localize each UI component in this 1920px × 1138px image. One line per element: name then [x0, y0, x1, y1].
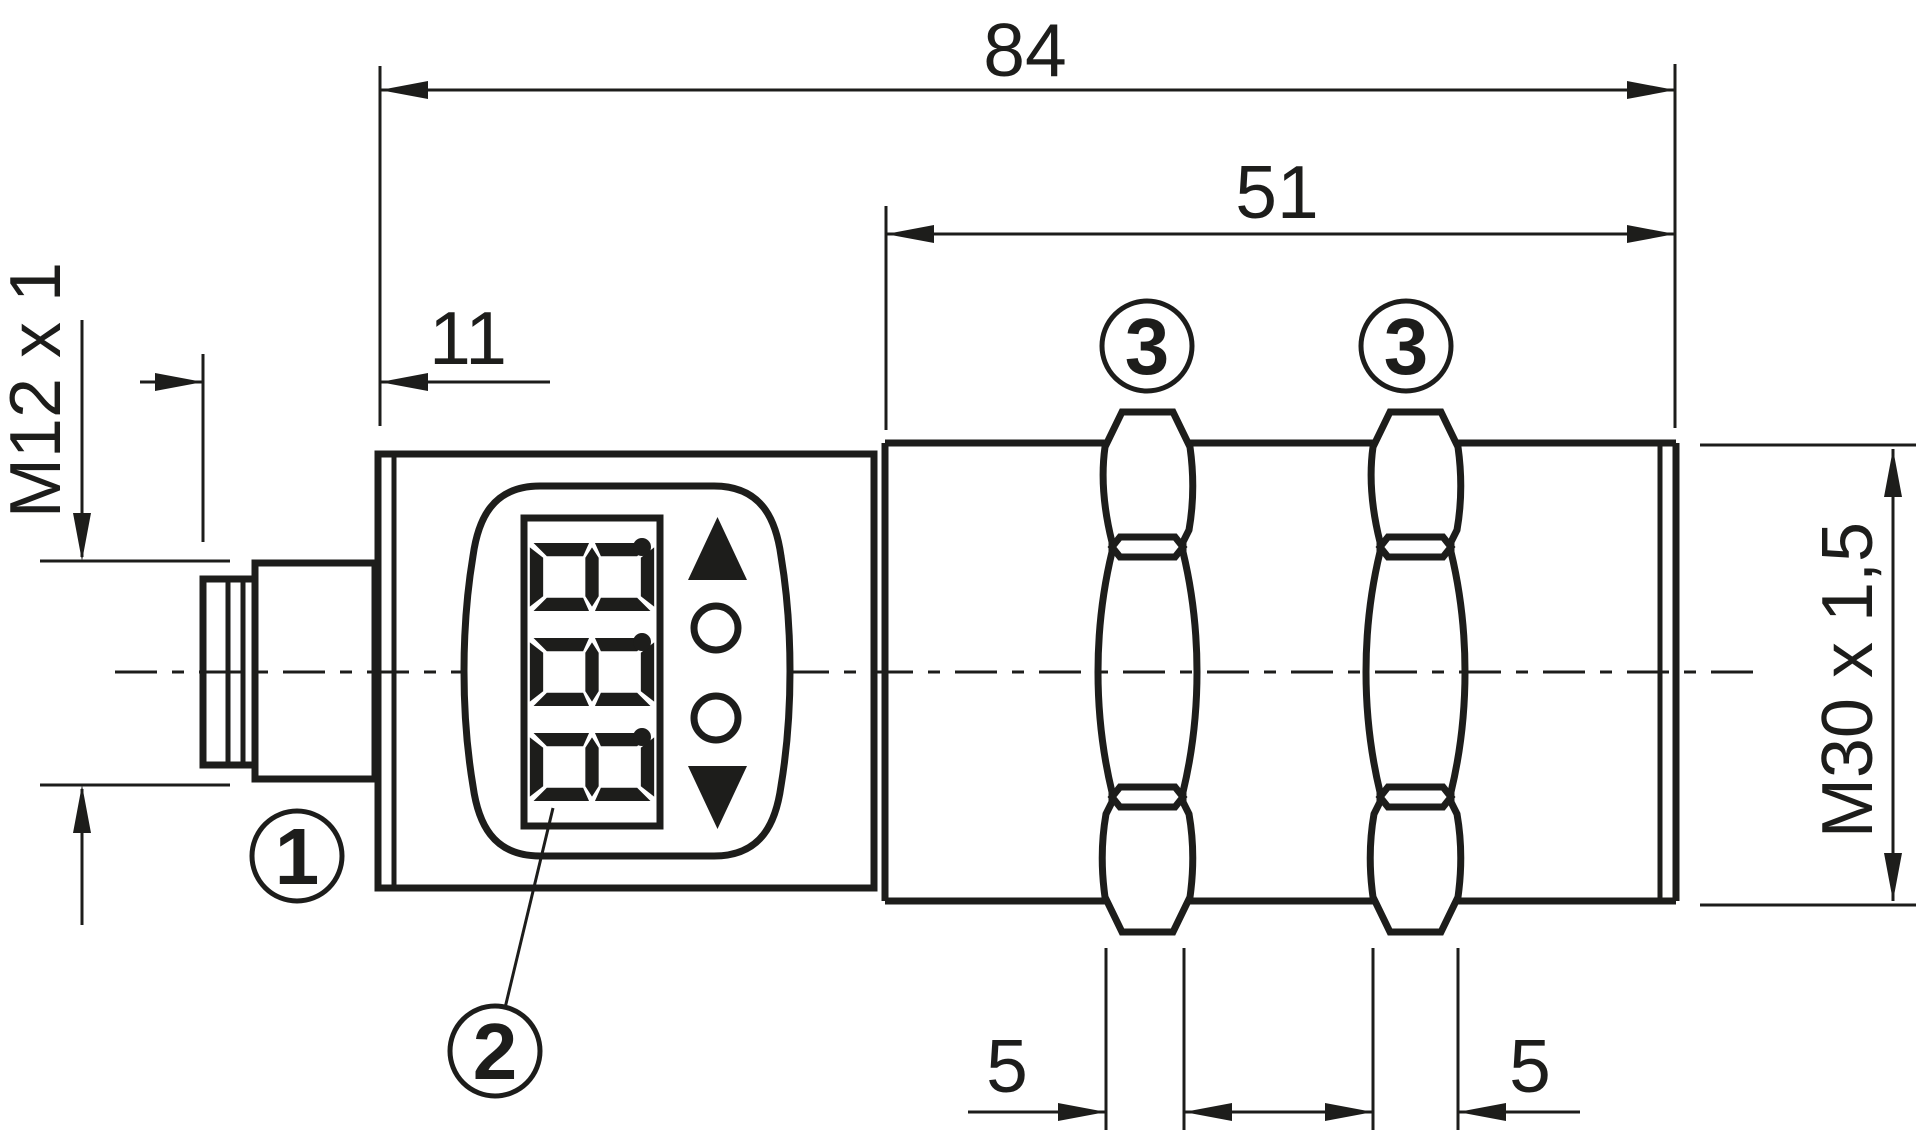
- arrowhead-left-pointing: [1184, 1103, 1232, 1121]
- arrowhead-up: [73, 785, 91, 833]
- arrowhead-right: [1627, 81, 1675, 99]
- dimension-51: 51: [886, 150, 1675, 430]
- arrowhead-down: [73, 513, 91, 561]
- arrowhead-right-pointing: [155, 373, 203, 391]
- sensor-dimension-drawing: 84 51 11 M12 x 1 M30 x 1,5: [0, 0, 1920, 1138]
- technical-drawing-page: 84 51 11 M12 x 1 M30 x 1,5: [0, 0, 1920, 1138]
- arrowhead-right-pointing: [1058, 1103, 1106, 1121]
- arrowhead-left: [886, 225, 934, 243]
- decimal-point-2: [633, 633, 651, 651]
- dimension-text-51: 51: [1235, 150, 1318, 234]
- arrowhead-right-pointing: [1325, 1103, 1373, 1121]
- callouts: 1 2 3 3: [252, 301, 1451, 1096]
- arrowhead-right: [1627, 225, 1675, 243]
- dimension-text-m12: M12 x 1: [0, 262, 76, 518]
- dimension-text-11: 11: [429, 296, 507, 380]
- dimension-84: 84: [380, 8, 1675, 428]
- arrowhead-left-pointing: [380, 373, 428, 391]
- decimal-point-1: [633, 538, 651, 556]
- arrowhead-left-pointing: [1458, 1103, 1506, 1121]
- callout-2-number: 2: [473, 1007, 518, 1096]
- dimension-m12: M12 x 1: [0, 262, 230, 925]
- dimension-nut-widths: 5 5: [968, 948, 1580, 1130]
- dimension-text-m30: M30 x 1,5: [1808, 522, 1888, 838]
- dimension-text-5-left: 5: [986, 1024, 1028, 1108]
- decimal-point-3: [633, 728, 651, 746]
- arrowhead-left: [380, 81, 428, 99]
- dimension-text-5-right: 5: [1509, 1024, 1551, 1108]
- callout-3b-number: 3: [1384, 302, 1429, 391]
- arrowhead-up: [1884, 449, 1902, 497]
- arrowhead-down: [1884, 853, 1902, 901]
- callout-1-number: 1: [275, 812, 320, 901]
- callout-3a-number: 3: [1125, 302, 1170, 391]
- display-panel: [464, 486, 790, 856]
- dimension-m30: M30 x 1,5: [1700, 445, 1916, 905]
- dimension-text-84: 84: [983, 8, 1066, 92]
